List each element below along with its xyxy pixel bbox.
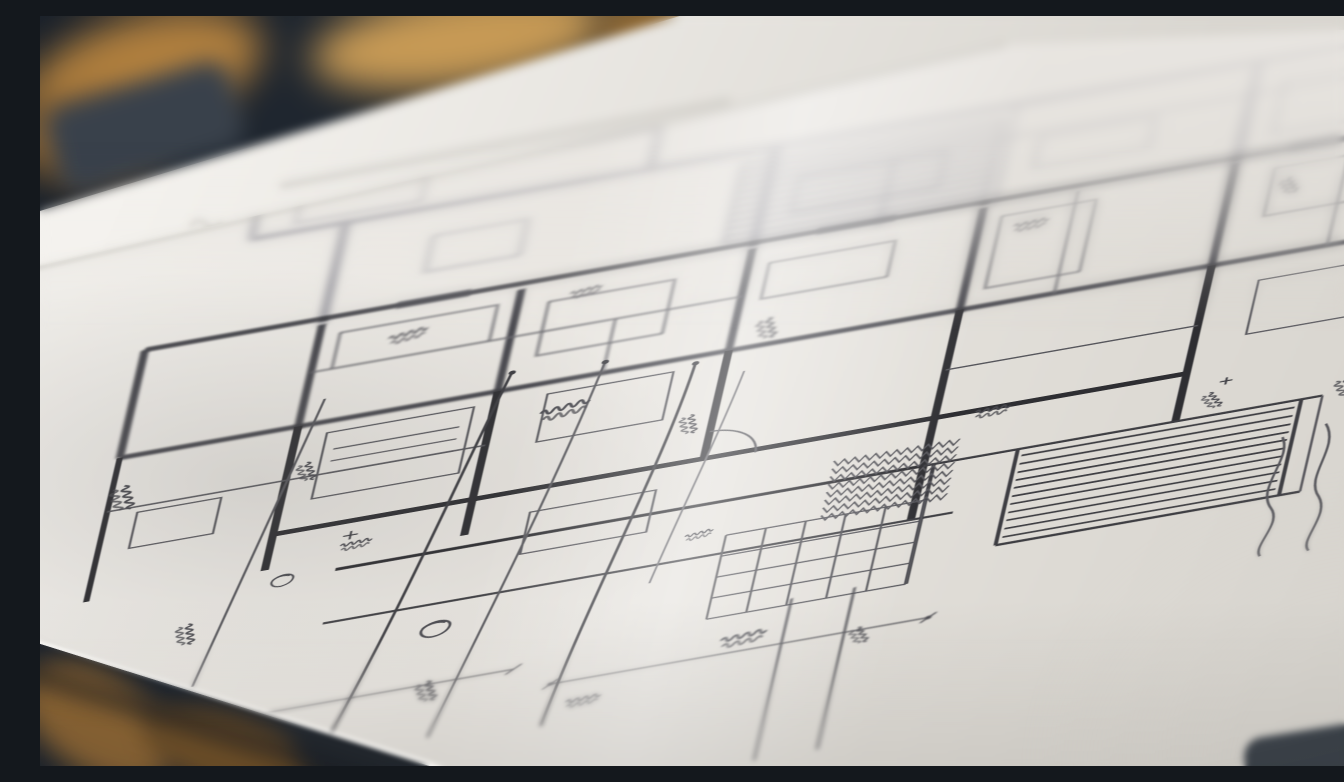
front-sheet-edge [40, 43, 1006, 270]
back-sheet-surface [40, 16, 1344, 766]
plus-marks [342, 376, 1233, 541]
distant-fixtures [275, 16, 1344, 310]
paper-cut-edge-highlight [40, 639, 488, 766]
dimension-lines [237, 590, 941, 743]
window-mullion-grid [706, 500, 925, 619]
depth-of-field-blur-right [927, 391, 1344, 766]
dimension-dots [547, 615, 932, 686]
near-plan-lines [40, 201, 1344, 766]
stair-enclosure [307, 396, 1322, 690]
distant-plan-lines [228, 16, 1344, 341]
near-partitions [61, 294, 1344, 710]
mid-walls [120, 84, 1344, 458]
mid-annotation-scribbles [373, 141, 1344, 408]
paper-shading-left [40, 16, 1344, 766]
paper-shading-bottom [40, 16, 1344, 766]
window-symbols [396, 130, 1344, 308]
wood-grain-blur [40, 637, 194, 766]
scribble-fill-hatch [820, 439, 960, 521]
column-squares [293, 154, 1242, 430]
stair-hatching [1002, 407, 1294, 537]
plan-perspective [40, 16, 1344, 766]
floor-plan-drawing [40, 16, 1344, 766]
front-sheet-surface [40, 16, 1344, 766]
desk-object-corner [1241, 717, 1344, 766]
contour-wave-lines [1251, 412, 1344, 563]
wooden-object-blur [592, 16, 772, 58]
back-sheet-faint-sketch [40, 16, 1344, 766]
faint-background-lines [190, 101, 770, 228]
wooden-object-blur [40, 94, 160, 180]
photo-vignette [40, 16, 1344, 766]
mid-plan-lines [119, 81, 1344, 461]
near-annotation-scribbles [62, 257, 1344, 702]
back-sheet-edge [40, 16, 694, 212]
furniture-outlines [111, 246, 1344, 626]
paper-sheen-highlight [40, 16, 1344, 766]
foreground-plan-lines [211, 571, 946, 766]
freehand-utility-lines [168, 323, 756, 766]
wood-grain-blur [129, 689, 333, 766]
paper-drop-shadow [40, 664, 546, 766]
paper-stack [40, 16, 1344, 766]
wooden-object-blur [305, 16, 615, 106]
photo-scene: Close-up photograph of a hand-sketched a… [40, 16, 1344, 766]
background-object-blur [41, 56, 249, 198]
wooden-object-blur [40, 16, 275, 155]
front-sheet [40, 16, 1344, 766]
near-walls [249, 225, 1344, 637]
depth-haze-overlay [40, 16, 1344, 766]
mid-partitions [298, 138, 1344, 427]
door-swing-arc [703, 422, 763, 461]
photo-caption: Close-up photograph of a hand-sketched a… [40, 16, 41, 17]
distant-roof-hatching [724, 118, 1005, 243]
leader-dots [502, 337, 705, 400]
foreground-parallel-lines [754, 587, 855, 760]
depth-of-field-blur-bottom [40, 639, 1344, 767]
foreground-annotation-scribbles [312, 601, 877, 766]
table-shadow-blur [285, 702, 440, 766]
depth-of-field-blur-top [40, 16, 1344, 331]
